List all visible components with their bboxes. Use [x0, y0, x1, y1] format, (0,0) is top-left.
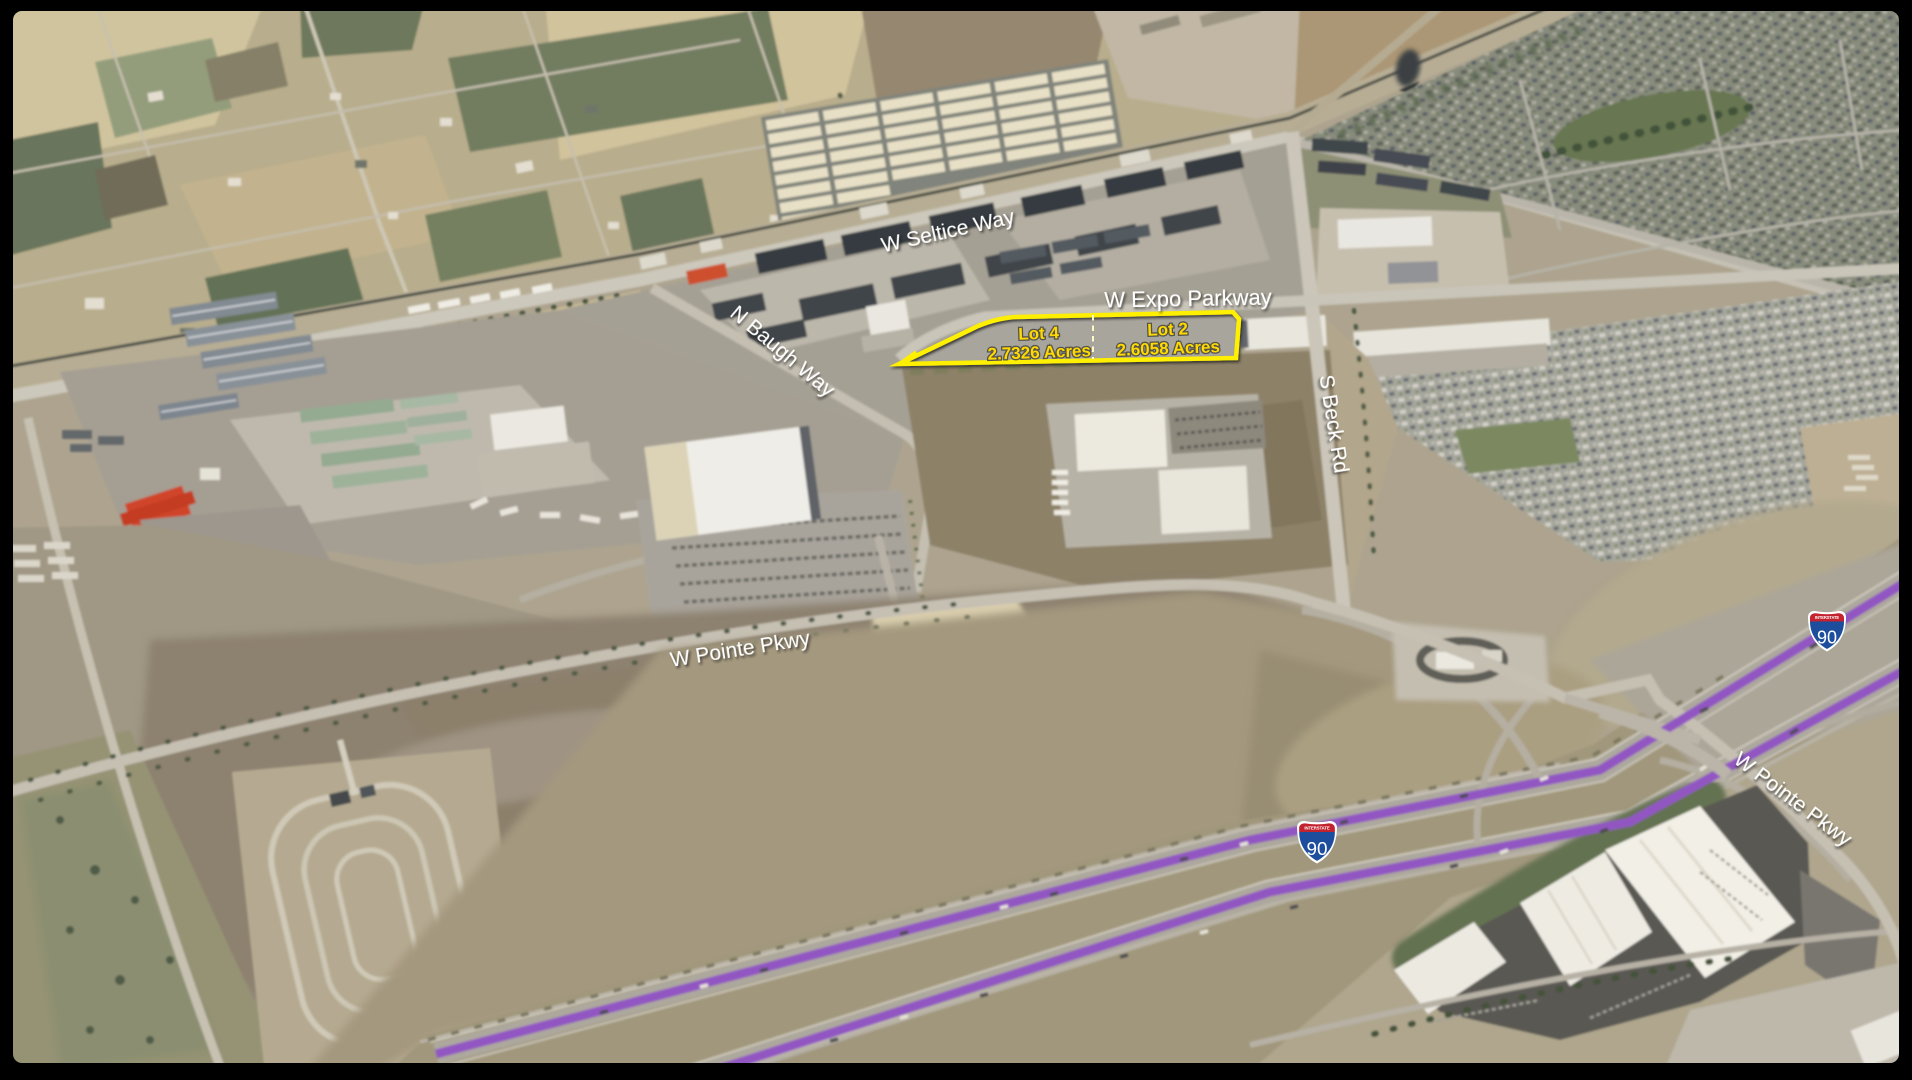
svg-text:90: 90: [1306, 839, 1327, 860]
svg-text:Lot 2: Lot 2: [1147, 319, 1188, 339]
svg-text:INTERSTATE: INTERSTATE: [1815, 615, 1839, 620]
svg-text:INTERSTATE: INTERSTATE: [1304, 826, 1330, 831]
svg-text:Lot 4: Lot 4: [1018, 323, 1060, 343]
svg-text:2.7326 Acres: 2.7326 Acres: [987, 341, 1091, 364]
svg-text:90: 90: [1817, 628, 1837, 648]
svg-text:2.6058 Acres: 2.6058 Acres: [1116, 337, 1220, 360]
svg-text:W Expo Parkway: W Expo Parkway: [1104, 285, 1272, 313]
